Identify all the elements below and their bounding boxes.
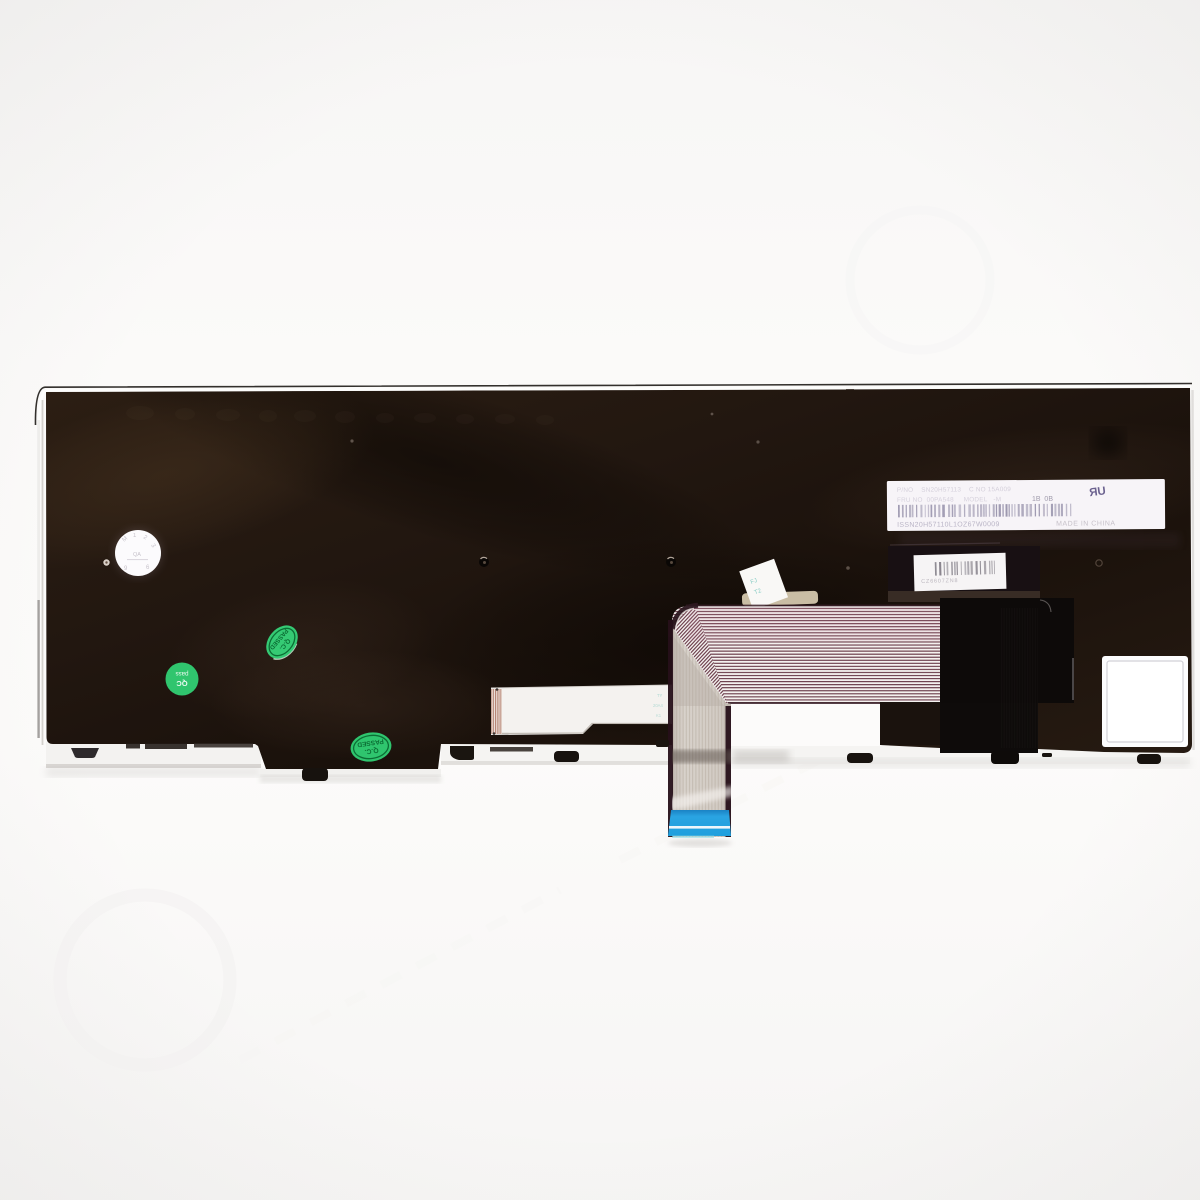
svg-text:TY: TY [657, 693, 663, 698]
svg-text:pass: pass [175, 670, 188, 677]
svg-text:QA: QA [133, 552, 141, 558]
svg-text:CZ6607ZN8: CZ6607ZN8 [921, 578, 958, 585]
svg-text:FRU NO 00PA548 MODEL -M: FRU NO 00PA548 MODEL -M [897, 496, 1001, 504]
svg-text:20A4: 20A4 [653, 703, 663, 708]
svg-text:K1: K1 [656, 713, 662, 718]
svg-text:ISSN20H57110L1OZ67W0009: ISSN20H57110L1OZ67W0009 [897, 521, 1000, 529]
svg-text:MADE IN CHINA: MADE IN CHINA [1056, 520, 1115, 527]
svg-text:QC: QC [176, 679, 188, 688]
svg-text:ЯU: ЯU [1089, 485, 1107, 499]
svg-text:1B 0B: 1B 0B [1032, 496, 1053, 503]
svg-text:P/NO SN20H57113 C NO 15A: P/NO SN20H57113 C NO 15A009 [897, 486, 1011, 494]
